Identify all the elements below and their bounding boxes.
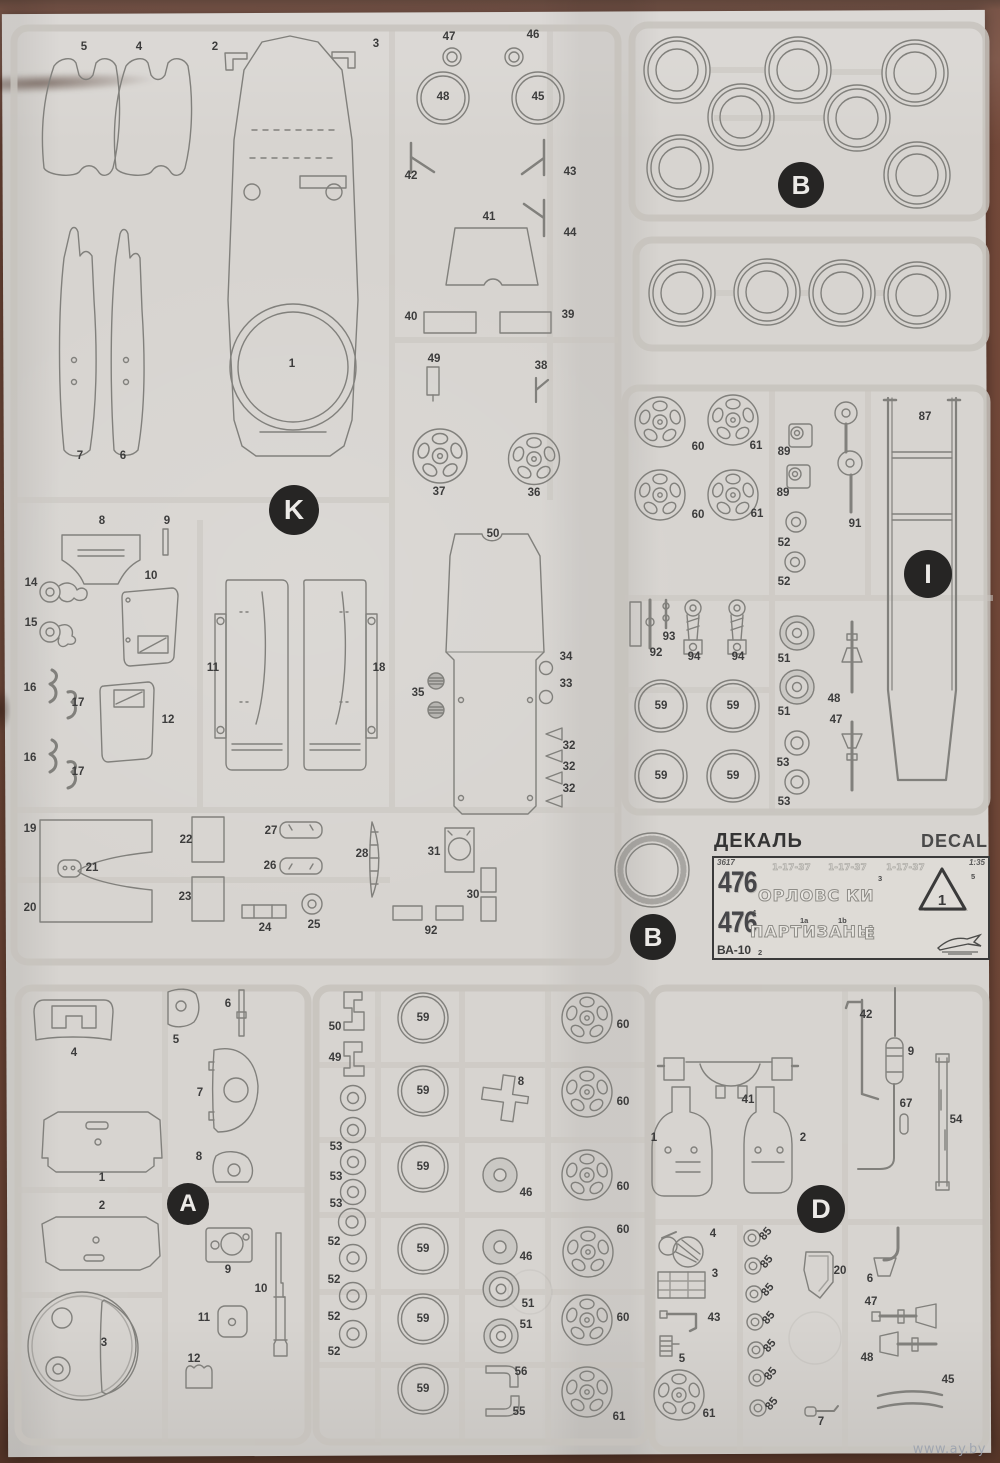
part-number-label: 92 — [650, 647, 663, 659]
decal-header: ДЕКАЛЬ DECAL — [712, 830, 990, 854]
part-number-label: 89 — [777, 487, 790, 499]
part-number-label: 49 — [428, 353, 441, 365]
scan-edge-mark — [0, 688, 12, 732]
part-number-label: 93 — [663, 631, 676, 643]
part-number-label: 67 — [900, 1098, 913, 1110]
part-number-label: 53 — [777, 757, 790, 769]
part-number-label: 36 — [528, 487, 541, 499]
part-number-label: 14 — [25, 577, 38, 589]
part-number-label: 5 — [81, 41, 87, 53]
decal-item-ref: 5 — [971, 872, 975, 881]
part-number-label: 3 — [101, 1337, 107, 1349]
part-number-label: 1 — [99, 1172, 105, 1184]
part-number-label: 59 — [417, 1313, 430, 1325]
part-number-label: 92 — [425, 925, 438, 937]
part-number-label: 44 — [564, 227, 577, 239]
part-number-label: 48 — [828, 693, 841, 705]
part-number-label: 53 — [330, 1171, 343, 1183]
part-number-label: 61 — [751, 508, 764, 520]
zvezda-eagle-icon — [934, 932, 986, 956]
part-number-label: 59 — [417, 1243, 430, 1255]
part-number-label: 22 — [180, 834, 193, 846]
sprue-badge-D: D — [797, 1185, 845, 1233]
decal-faint-plate: 1-17-37 — [886, 863, 925, 873]
part-number-label: 53 — [330, 1198, 343, 1210]
part-number-label: 21 — [86, 862, 99, 874]
part-number-label: 32 — [563, 761, 576, 773]
part-number-label: 9 — [164, 515, 170, 527]
part-number-label: 41 — [483, 211, 496, 223]
part-number-label: 31 — [428, 846, 441, 858]
part-number-label: 61 — [703, 1408, 716, 1420]
part-number-label: 94 — [732, 651, 745, 663]
part-number-label: 3 — [712, 1268, 718, 1280]
decal-item-ref: 2 — [758, 948, 762, 957]
decal-item-ref: 1b — [838, 916, 847, 925]
part-number-label: 16 — [24, 682, 37, 694]
sprue-badge-I: I — [904, 550, 952, 598]
decal-slogan-partizany-e: Е — [864, 924, 876, 943]
part-number-label: 61 — [750, 440, 763, 452]
part-number-label: 60 — [617, 1181, 630, 1193]
sprue-badge-B: B — [778, 162, 824, 208]
part-number-label: 6 — [120, 450, 126, 462]
part-number-label: 59 — [417, 1383, 430, 1395]
decal-item-ref: 1a — [800, 916, 808, 925]
part-number-label: 4 — [71, 1047, 77, 1059]
decal-item-ref: 3 — [878, 874, 882, 883]
part-number-label: 11 — [207, 662, 219, 674]
part-number-label: 45 — [942, 1374, 955, 1386]
part-number-label: 43 — [708, 1312, 721, 1324]
part-number-label: 2 — [99, 1200, 105, 1212]
part-number-label: 53 — [330, 1141, 343, 1153]
part-number-label: 46 — [520, 1187, 533, 1199]
part-number-label: 52 — [778, 537, 791, 549]
part-number-label: 60 — [692, 441, 705, 453]
part-number-label: 47 — [830, 714, 843, 726]
part-number-label: 32 — [563, 783, 576, 795]
part-number-label: 40 — [405, 311, 418, 323]
part-number-label: 52 — [328, 1311, 341, 1323]
decal-box: 3617 1:35 476 476 ОРЛОВС КИ ПАРТИЗАНЫ Е … — [712, 856, 990, 960]
part-number-label: 87 — [919, 411, 932, 423]
decal-slogan-orlovskie-2: КИ — [846, 886, 874, 905]
part-number-label: 19 — [24, 823, 37, 835]
part-number-label: 17 — [72, 766, 85, 778]
part-number-label: 59 — [417, 1012, 430, 1024]
triangle-number: 1 — [938, 892, 946, 909]
part-number-label: 94 — [688, 651, 701, 663]
part-number-label: 11 — [198, 1312, 210, 1324]
kit-scale: 1:35 — [969, 858, 985, 867]
part-number-label: 20 — [24, 902, 37, 914]
part-number-label: 39 — [562, 309, 575, 321]
part-number-label: 33 — [560, 678, 573, 690]
vehicle-name: ВА-10 — [717, 943, 751, 957]
part-number-label: 55 — [513, 1406, 526, 1418]
part-number-label: 48 — [437, 91, 450, 103]
part-number-label: 52 — [328, 1346, 341, 1358]
part-number-label: 54 — [950, 1114, 963, 1126]
part-number-label: 7 — [197, 1087, 203, 1099]
part-number-label: 10 — [145, 570, 158, 582]
part-number-label: 1 — [289, 358, 295, 370]
part-number-label: 43 — [564, 166, 577, 178]
part-number-label: 5 — [173, 1034, 179, 1046]
part-number-label: 46 — [527, 29, 540, 41]
part-number-label: 8 — [99, 515, 105, 527]
part-number-label: 4 — [710, 1228, 716, 1240]
part-number-label: 49 — [329, 1052, 342, 1064]
part-number-label: 30 — [467, 889, 480, 901]
watermark: www.ay.by — [913, 1442, 986, 1457]
part-number-label: 56 — [515, 1366, 528, 1378]
part-number-label: 9 — [908, 1046, 914, 1058]
sprue-badge-K: K — [269, 485, 319, 535]
part-number-label: 42 — [860, 1009, 873, 1021]
part-number-label: 7 — [818, 1416, 824, 1428]
part-number-label: 23 — [179, 891, 192, 903]
part-number-label: 59 — [655, 770, 668, 782]
part-number-label: 61 — [613, 1411, 626, 1423]
part-number-label: 7 — [77, 450, 83, 462]
decal-number-plate-top: 476 — [718, 866, 757, 900]
part-number-label: 6 — [225, 998, 231, 1010]
part-number-label: 4 — [136, 41, 142, 53]
part-number-label: 60 — [617, 1019, 630, 1031]
part-number-label: 60 — [617, 1224, 630, 1236]
part-number-label: 51 — [778, 653, 791, 665]
part-number-label: 60 — [617, 1312, 630, 1324]
part-number-label: 17 — [72, 697, 85, 709]
part-number-label: 38 — [535, 360, 548, 372]
part-number-label: 18 — [373, 662, 386, 674]
part-number-label: 51 — [522, 1298, 535, 1310]
part-number-label: 26 — [264, 860, 277, 872]
part-number-label: 5 — [679, 1353, 685, 1365]
part-number-label: 52 — [778, 576, 791, 588]
part-number-label: 89 — [778, 446, 791, 458]
part-number-label: 3 — [373, 38, 379, 50]
part-number-label: 50 — [329, 1021, 342, 1033]
part-number-label: 59 — [727, 700, 740, 712]
decal-faint-plate: 1-17-37 — [828, 863, 867, 873]
part-number-label: 20 — [834, 1265, 847, 1277]
part-number-label: 50 — [487, 528, 500, 540]
part-number-label: 59 — [727, 770, 740, 782]
part-number-label: 60 — [617, 1096, 630, 1108]
decal-slogan-partizany: ПАРТИЗАНЫ — [750, 922, 875, 941]
part-number-label: 59 — [417, 1161, 430, 1173]
part-number-label: 41 — [742, 1094, 755, 1106]
part-number-label: 47 — [443, 31, 456, 43]
part-number-label: 32 — [563, 740, 576, 752]
scanned-instruction-sheet: 5423474648454243444140394938137367689141… — [0, 0, 1000, 1463]
decal-panel: ДЕКАЛЬ DECAL 3617 1:35 476 476 ОРЛОВС КИ… — [712, 830, 990, 958]
part-number-label: 8 — [196, 1151, 202, 1163]
part-number-label: 52 — [328, 1236, 341, 1248]
part-number-label: 51 — [520, 1319, 533, 1331]
part-number-label: 47 — [865, 1296, 878, 1308]
part-number-label: 27 — [265, 825, 278, 837]
part-number-label: 8 — [518, 1076, 524, 1088]
part-number-label: 37 — [433, 486, 446, 498]
sprue-badge-B: B — [630, 914, 676, 960]
part-number-label: 15 — [25, 617, 38, 629]
part-number-label: 6 — [867, 1273, 873, 1285]
part-number-label: 46 — [520, 1251, 533, 1263]
paper-sheet — [2, 10, 991, 1457]
part-number-label: 25 — [308, 919, 321, 931]
part-number-label: 28 — [356, 848, 369, 860]
part-number-label: 1 — [651, 1132, 657, 1144]
sprue-badge-A: A — [167, 1183, 209, 1225]
part-number-label: 45 — [532, 91, 545, 103]
part-number-label: 59 — [655, 700, 668, 712]
decal-item-ref: 4 — [752, 908, 756, 917]
part-number-label: 51 — [778, 706, 791, 718]
part-number-label: 9 — [225, 1264, 231, 1276]
part-number-label: 91 — [849, 518, 862, 530]
part-number-label: 2 — [800, 1132, 806, 1144]
part-number-label: 12 — [188, 1353, 201, 1365]
part-number-label: 24 — [259, 922, 272, 934]
part-number-label: 35 — [412, 687, 425, 699]
part-number-label: 59 — [417, 1085, 430, 1097]
part-number-label: 52 — [328, 1274, 341, 1286]
part-number-label: 12 — [162, 714, 175, 726]
decal-title-russian: ДЕКАЛЬ — [714, 830, 803, 853]
decal-slogan-orlovskie-1: ОРЛОВС — [758, 886, 840, 905]
part-number-label: 53 — [778, 796, 791, 808]
part-number-label: 34 — [560, 651, 573, 663]
part-number-label: 16 — [24, 752, 37, 764]
part-number-label: 10 — [255, 1283, 268, 1295]
part-number-label: 42 — [405, 170, 418, 182]
part-number-label: 48 — [861, 1352, 874, 1364]
decal-triangle-marking: 1 — [916, 866, 968, 914]
part-number-label: 2 — [212, 41, 218, 53]
part-number-label: 60 — [692, 509, 705, 521]
decal-title-english: DECAL — [921, 831, 988, 852]
decal-faint-plate: 1-17-37 — [772, 863, 811, 873]
